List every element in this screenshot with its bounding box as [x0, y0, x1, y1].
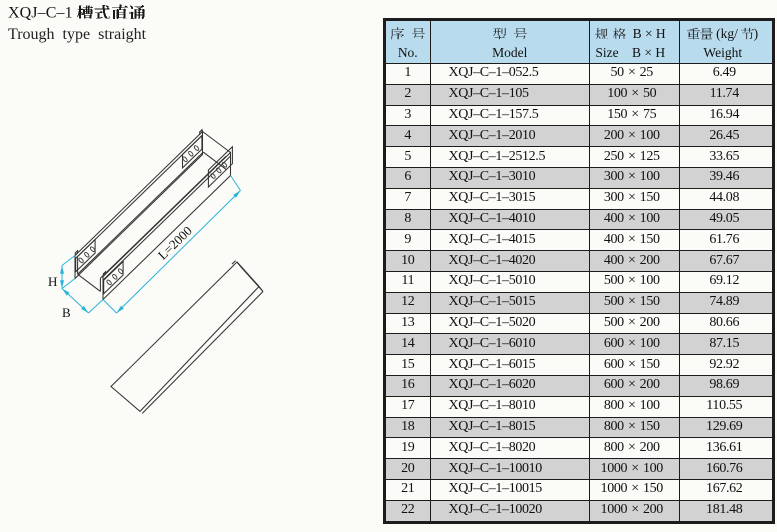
svg-text:H: H [48, 274, 57, 289]
svg-text:B: B [62, 305, 71, 320]
